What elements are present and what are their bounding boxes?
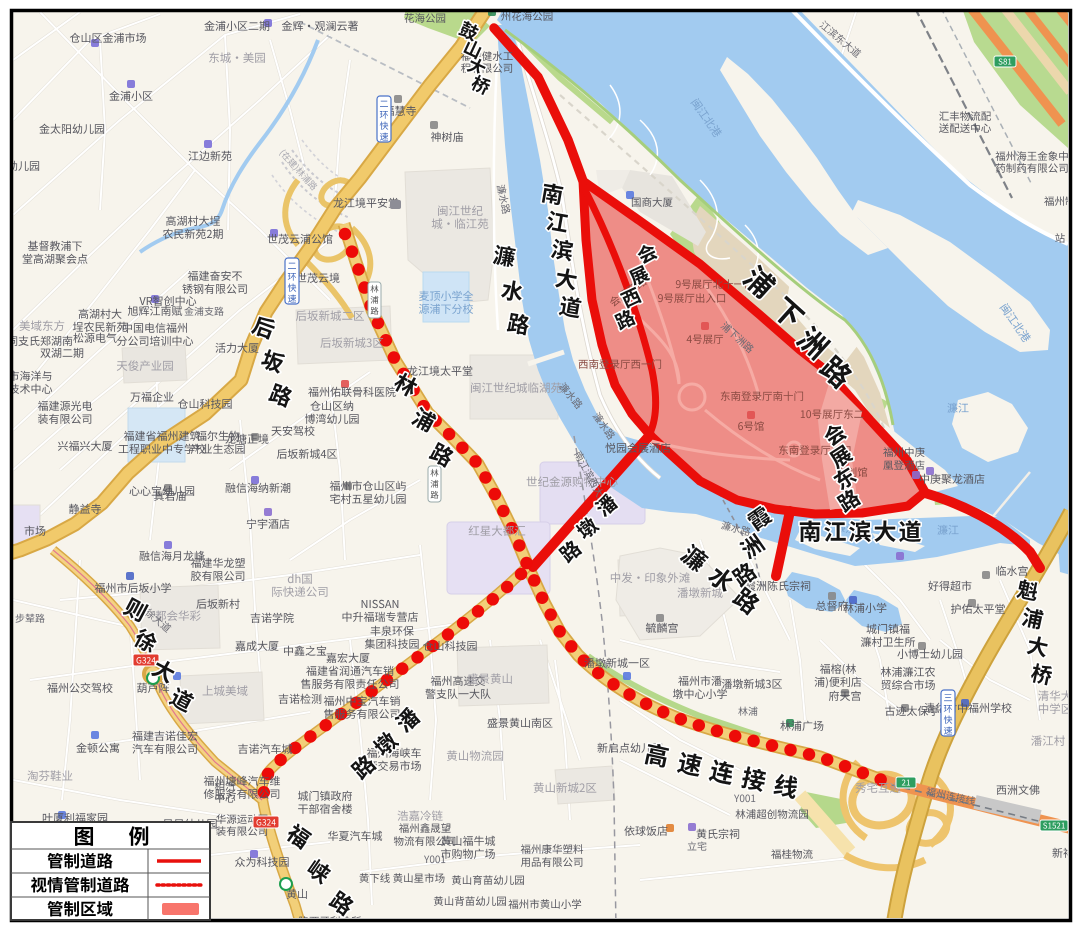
- svg-text:静益寺: 静益寺: [69, 501, 102, 517]
- svg-text:胶有限公司: 胶有限公司: [191, 568, 246, 584]
- svg-text:好得超市: 好得超市: [928, 578, 972, 594]
- svg-text:后坂新城3区: 后坂新城3区: [320, 335, 384, 351]
- svg-text:潘墩新城一区: 潘墩新城一区: [584, 655, 650, 671]
- svg-text:路: 路: [370, 305, 379, 317]
- svg-text:锈钢有限公司: 锈钢有限公司: [182, 281, 248, 297]
- svg-text:依球饭店: 依球饭店: [624, 823, 668, 839]
- svg-text:城·临江苑: 城·临江苑: [431, 216, 489, 232]
- svg-text:世茂云浦公馆: 世茂云浦公馆: [267, 231, 333, 247]
- svg-text:天安驾校: 天安驾校: [271, 423, 315, 439]
- svg-text:福州佑联骨科医院: 福州佑联骨科医院: [308, 384, 396, 400]
- svg-text:速: 速: [287, 292, 296, 305]
- svg-text:花海公园: 花海公园: [404, 11, 446, 26]
- svg-text:管制道路: 管制道路: [47, 848, 114, 872]
- svg-text:堂高湖聚会点: 堂高湖聚会点: [22, 251, 88, 267]
- svg-text:吉诺检测: 吉诺检测: [278, 691, 322, 707]
- svg-text:上城美域: 上城美域: [202, 683, 248, 699]
- svg-text:速: 速: [943, 724, 952, 737]
- svg-text:濂江: 濂江: [937, 522, 959, 538]
- svg-text:汽车有限公司: 汽车有限公司: [132, 741, 198, 757]
- svg-text:松源电气: 松源电气: [73, 330, 117, 346]
- svg-text:西洲文佛: 西洲文佛: [996, 782, 1040, 798]
- svg-text:小博士幼儿园: 小博士幼儿园: [897, 646, 963, 662]
- svg-text:国商大厦: 国商大厦: [631, 195, 673, 210]
- svg-text:警支队一大队: 警支队一大队: [425, 686, 491, 702]
- svg-text:装有限公司: 装有限公司: [38, 411, 93, 427]
- svg-text:红星大都汇: 红星大都汇: [468, 523, 526, 539]
- svg-text:大: 大: [874, 513, 897, 547]
- svg-text:例: 例: [129, 821, 150, 851]
- svg-text:9号展厅出入口: 9号展厅出入口: [658, 291, 727, 306]
- svg-text:农民新苑2期: 农民新苑2期: [162, 226, 223, 242]
- svg-text:后坂新城二区: 后坂新城二区: [296, 308, 365, 324]
- svg-text:西南登录厅西一门: 西南登录厅西一门: [578, 357, 662, 372]
- svg-text:墩中心小学: 墩中心小学: [673, 686, 728, 702]
- svg-text:4号展厅: 4号展厅: [686, 332, 723, 347]
- svg-text:金顿公寓: 金顿公寓: [76, 740, 120, 756]
- svg-text:仓山科技园: 仓山科技园: [178, 396, 233, 412]
- svg-text:干部宿舍楼: 干部宿舍楼: [298, 801, 353, 817]
- svg-text:吉诺汽车城: 吉诺汽车城: [238, 741, 293, 757]
- svg-text:东南登录厅南十门: 东南登录厅南十门: [720, 389, 804, 404]
- svg-text:管制区域: 管制区域: [47, 896, 114, 920]
- svg-text:21: 21: [902, 778, 911, 789]
- svg-text:工程职业中专学校: 工程职业中专学校: [118, 441, 206, 457]
- svg-text:图: 图: [74, 821, 95, 851]
- svg-text:滨: 滨: [849, 513, 872, 547]
- svg-text:中心: 中心: [215, 791, 236, 806]
- svg-text:龙塘正境: 龙塘正境: [225, 431, 269, 447]
- svg-text:分公司培训中心: 分公司培训中心: [117, 333, 194, 349]
- svg-text:中庚聚龙酒店: 中庚聚龙酒店: [919, 471, 985, 487]
- svg-text:送配送中心: 送配送中心: [939, 121, 992, 136]
- svg-text:售服务有限责任公司: 售服务有限责任公司: [301, 676, 400, 692]
- svg-text:仓山科技园: 仓山科技园: [423, 638, 478, 654]
- svg-text:潘江村: 潘江村: [1031, 733, 1066, 749]
- svg-text:后坂新城4区: 后坂新城4区: [276, 446, 337, 462]
- svg-text:黄山育苗幼儿园: 黄山育苗幼儿园: [451, 873, 525, 888]
- svg-text:视情管制道路: 视情管制道路: [31, 872, 131, 896]
- svg-text:福州公交驾校: 福州公交驾校: [47, 680, 113, 696]
- svg-text:盛景黄山: 盛景黄山: [467, 671, 513, 687]
- svg-text:宁宇酒店: 宁宇酒店: [246, 516, 290, 532]
- svg-text:嘉成大厦: 嘉成大厦: [235, 638, 279, 654]
- svg-text:集团科技园: 集团科技园: [365, 636, 420, 652]
- svg-text:立宅: 立宅: [687, 838, 707, 853]
- svg-text:用品有限公司: 用品有限公司: [521, 855, 584, 870]
- svg-text:古迹太保亭: 古迹太保亭: [885, 703, 940, 719]
- svg-text:黄山背苗幼儿园: 黄山背苗幼儿园: [433, 894, 507, 909]
- svg-text:濂江: 濂江: [947, 400, 969, 416]
- svg-text:双湖二期: 双湖二期: [40, 345, 84, 361]
- svg-text:天俊产业园: 天俊产业园: [116, 358, 174, 374]
- svg-text:活力大厦: 活力大厦: [215, 340, 259, 356]
- svg-text:宅村五星幼儿园: 宅村五星幼儿园: [330, 491, 407, 507]
- svg-text:府天宫: 府天宫: [829, 688, 862, 704]
- svg-text:真君庙: 真君庙: [154, 488, 187, 504]
- svg-text:金太阳幼儿园: 金太阳幼儿园: [39, 121, 105, 137]
- svg-text:秀宅互通: 秀宅互通: [855, 780, 901, 796]
- svg-text:速: 速: [379, 130, 388, 143]
- svg-text:东城·美园: 东城·美园: [208, 50, 266, 66]
- svg-text:悦园会展酒店: 悦园会展酒店: [605, 440, 671, 456]
- svg-text:S1521: S1521: [1043, 821, 1066, 832]
- svg-text:龙江境平安堂: 龙江境平安堂: [333, 195, 399, 211]
- svg-text:护佑太平堂: 护佑太平堂: [951, 601, 1006, 617]
- svg-text:道: 道: [899, 513, 922, 547]
- svg-text:仓山区金浦市场: 仓山区金浦市场: [70, 30, 147, 46]
- svg-text:际快递公司: 际快递公司: [271, 584, 329, 600]
- svg-text:金浦小区二期: 金浦小区二期: [204, 18, 270, 34]
- svg-text:站: 站: [1055, 231, 1066, 246]
- svg-text:淘芬鞋业: 淘芬鞋业: [27, 768, 73, 784]
- svg-text:南: 南: [799, 513, 822, 547]
- svg-text:6号馆: 6号馆: [738, 419, 765, 434]
- svg-text:万福企业: 万福企业: [130, 389, 174, 405]
- svg-text:药制药有限公司: 药制药有限公司: [995, 161, 1069, 176]
- svg-text:中鑫之宝: 中鑫之宝: [283, 643, 327, 659]
- svg-text:神树庙: 神树庙: [431, 129, 464, 145]
- svg-text:市场: 市场: [24, 523, 46, 539]
- svg-text:金浦小区: 金浦小区: [109, 88, 153, 104]
- svg-text:黄下线 黄山星市场: 黄下线 黄山星市场: [359, 871, 445, 886]
- svg-text:中发·印象外滩: 中发·印象外滩: [610, 570, 691, 586]
- svg-text:福桂物流: 福桂物流: [771, 847, 813, 862]
- svg-text:步辇路: 步辇路: [15, 610, 45, 625]
- svg-text:金辉·观澜云著: 金辉·观澜云著: [282, 18, 359, 34]
- svg-text:福州市黄山小学: 福州市黄山小学: [508, 897, 582, 912]
- svg-text:盛景黄山南区: 盛景黄山南区: [487, 715, 553, 731]
- svg-text:闽江世纪城临湖苑: 闽江世纪城临湖苑: [470, 380, 562, 396]
- svg-text:源浦下分校: 源浦下分校: [419, 301, 474, 317]
- svg-text:兴福兴大厦: 兴福兴大厦: [58, 438, 113, 454]
- svg-text:美域东方: 美域东方: [19, 318, 65, 334]
- svg-text:林浦: 林浦: [738, 703, 758, 718]
- svg-text:世茂云境: 世茂云境: [296, 270, 340, 286]
- svg-text:中学区: 中学区: [1038, 701, 1073, 717]
- svg-text:江: 江: [824, 513, 847, 547]
- svg-text:林浦小学: 林浦小学: [843, 600, 887, 616]
- svg-text:G324: G324: [256, 817, 276, 829]
- svg-text:后坂新村: 后坂新村: [196, 596, 240, 612]
- svg-text:林浦超创物流园: 林浦超创物流园: [735, 807, 809, 822]
- svg-text:潘墩新城3区: 潘墩新城3区: [721, 676, 782, 692]
- svg-text:众为科技园: 众为科技园: [235, 854, 290, 870]
- svg-text:融信海纳新潮: 融信海纳新潮: [225, 480, 291, 496]
- svg-text:贸综合市场: 贸综合市场: [881, 677, 936, 693]
- svg-text:毓麟宫: 毓麟宫: [646, 620, 679, 636]
- svg-text:物流有限公司: 物流有限公司: [394, 834, 457, 849]
- svg-text:黄山新城2区: 黄山新城2区: [533, 780, 597, 796]
- svg-text:江边新苑: 江边新苑: [188, 148, 232, 164]
- svg-text:吉诺学院: 吉诺学院: [250, 610, 294, 626]
- svg-text:华夏汽车城: 华夏汽车城: [328, 828, 383, 844]
- svg-text:黄山物流园: 黄山物流园: [446, 748, 504, 764]
- svg-text:林浦广场: 林浦广场: [780, 718, 824, 734]
- svg-text:路: 路: [430, 489, 439, 501]
- svg-text:S81: S81: [998, 57, 1012, 68]
